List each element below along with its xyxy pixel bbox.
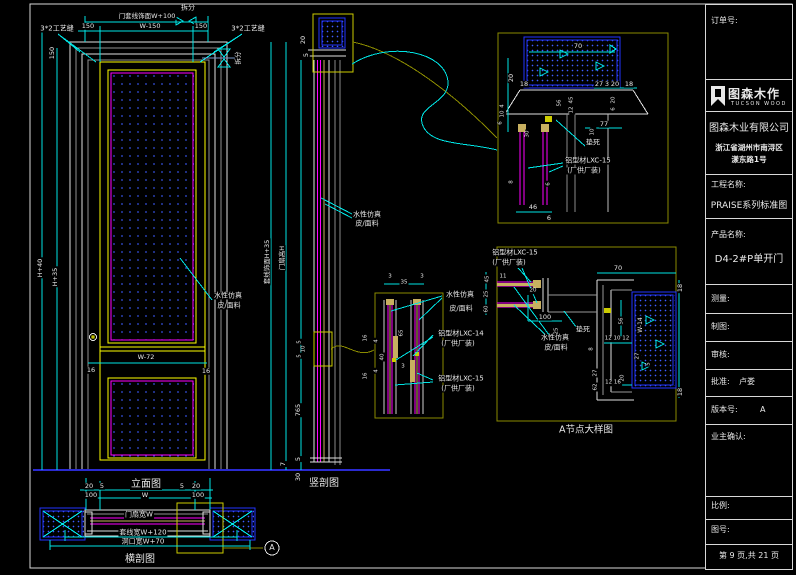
- annotation-f-leather1: 水性仿真: [540, 335, 570, 342]
- annotation-f-dim-18b: 18: [677, 387, 684, 397]
- annotation-e-note-dead: 垫死: [585, 140, 601, 147]
- annotation-vs-dim-30b: 30: [295, 472, 302, 482]
- annotation-vs-trim-h: 套线饰面H+35: [264, 239, 271, 286]
- mullion-leader-wave: [331, 346, 374, 353]
- annotation-e-dim-20: 20: [610, 81, 620, 88]
- annotation-e-dim-30: 30: [525, 130, 531, 139]
- annotation-hs-dim-20-l: 20: [84, 483, 94, 490]
- annotation-f-dim-1216: 12 16: [604, 380, 622, 386]
- annotation-e-dim-6d: 6: [546, 215, 552, 222]
- annotation-vs-lock-5b: 5: [297, 353, 303, 359]
- annotation-hs-dim-100-l: 100: [84, 492, 98, 499]
- annotation-label-seam-right: 3*2工艺缝: [230, 26, 265, 33]
- top-node-detail: [498, 33, 668, 223]
- annotation-hs-dim-5-r: 5: [179, 483, 185, 490]
- annotation-vs-lock-10: 10: [301, 345, 307, 354]
- annotation-e-dim-18l: 18: [519, 81, 529, 88]
- split-arrow-icon: [176, 17, 183, 25]
- title-block: 订单号: 图森木作 TUCSON WOOD 图森木业有限公司 浙江省湖州市南浔区…: [705, 4, 793, 570]
- annotation-f-dim-27b: 27: [593, 369, 599, 378]
- annotation-e-dim-10: 10: [500, 110, 506, 119]
- annotation-e-dim-6c: 6: [546, 181, 552, 187]
- annotation-g-alu15-2: (厂供厂装): [440, 386, 475, 393]
- annotation-e-dim-6b: 6: [611, 106, 617, 112]
- tucson-logo-icon: [710, 85, 726, 109]
- approve-label: 批准:: [711, 378, 730, 387]
- annotation-cap-vsection: 竖剖图: [308, 479, 340, 489]
- annotation-f-note-dead: 垫死: [575, 327, 591, 334]
- annotation-g-dim-3b: 3: [419, 274, 425, 280]
- annotation-g-dim-4b: 4: [374, 368, 380, 374]
- project-name-label: 工程名称:: [711, 181, 746, 190]
- annotation-f-alu15-2: (厂供厂装): [491, 260, 526, 267]
- annotation-elev-top-note: 门套线饰面W+100: [118, 13, 177, 20]
- annotation-elev-dim-h35: H+35: [52, 267, 59, 288]
- annotation-hs-dim-100-r: 100: [191, 492, 205, 499]
- annotation-f-alu15-1: 铝型材LXC-15: [491, 250, 539, 257]
- annotation-note-leather-door2: 皮/面料: [216, 303, 241, 310]
- annotation-e-dim-56: 56: [557, 99, 563, 108]
- annotation-vs-dim-5: 5: [303, 52, 310, 58]
- annotation-hs-hole-w: 洞口宽W+70: [121, 539, 166, 546]
- scale-label: 比例:: [711, 502, 730, 511]
- annotation-hs-leaf-w: 门扇宽W: [124, 512, 154, 519]
- annotation-note-leather-mid1: 水性仿真: [352, 212, 382, 219]
- annotation-vs-leaf-h: 门扇高H: [279, 245, 286, 271]
- annotation-g-alu15-1: 铝型材LXC-15: [437, 376, 485, 383]
- split-symbol-icon: [218, 49, 230, 57]
- annotation-e-dim-77: 77: [599, 121, 609, 128]
- product-name-label: 产品名称:: [711, 231, 746, 240]
- annotation-e-dim-6: 6: [498, 120, 504, 126]
- annotation-g-dim-4a: 4: [374, 338, 380, 344]
- annotation-f-leather2: 皮/面料: [543, 345, 568, 352]
- annotation-g-dim-16a: 16: [363, 334, 369, 343]
- node-a-detail: [497, 247, 679, 421]
- annotation-hs-dim-w: W: [141, 492, 149, 499]
- approve-value: 卢娄: [739, 378, 755, 387]
- annotation-g-dim-3a: 3: [387, 274, 393, 280]
- annotation-g-alu14-1: 铝型材LXC-14: [437, 331, 485, 338]
- annotation-f-dim-70: 70: [613, 265, 623, 272]
- version-value: A: [760, 406, 765, 415]
- annotation-vs-dim-765: 765: [295, 403, 302, 417]
- owner-confirm-label: 业主确认:: [711, 433, 746, 442]
- annotation-e-alu15-1: 铝型材LXC-15: [564, 158, 612, 165]
- annotation-elev-dim-150-vert: 150: [49, 46, 56, 60]
- annotation-f-dim-20: 20: [529, 288, 538, 294]
- annotation-g-dim-65: 65: [399, 329, 405, 338]
- annotation-elev-dim-150-right: 150: [194, 23, 208, 30]
- annotation-g-dim-35: 35: [400, 280, 409, 286]
- figure-number-label: 图号:: [711, 526, 730, 535]
- annotation-f-dim-121012: 12 10 12: [604, 336, 631, 342]
- annotation-hs-trim-w: 套线宽W+120: [118, 530, 167, 537]
- annotation-vs-dim-7b: 7: [280, 461, 287, 467]
- annotation-e-dim-8: 8: [509, 179, 515, 185]
- measure-label: 测量:: [711, 295, 730, 304]
- annotation-f-dim-8: 8: [589, 346, 595, 352]
- door-handle-icon: [90, 334, 97, 341]
- annotation-g-dim-3c: 3: [400, 364, 406, 370]
- annotation-f-dim-62: 62: [593, 383, 599, 392]
- drawing-sheet: 门套线饰面W+100150W-150150拆分3*2工艺缝3*2工艺缝150H+…: [0, 0, 796, 575]
- logo-name: 图森木作: [728, 88, 780, 101]
- annotation-g-leather1: 水性仿真: [445, 292, 475, 299]
- project-name-value: PRAISE系列标准图: [706, 202, 792, 212]
- annotation-e-dim-12: 12: [569, 106, 575, 115]
- annotation-e-dim-20v: 20: [508, 73, 515, 83]
- annotation-cap-adetail: A节点大样图: [558, 425, 614, 435]
- annotation-e-alu15-2: (厂供厂装): [566, 168, 601, 175]
- annotation-f-dim-56: 56: [619, 317, 625, 326]
- annotation-elev-dim-16-left: 16: [86, 367, 96, 374]
- order-number-label: 订单号:: [711, 17, 738, 26]
- annotation-g-dim-16b: 16: [363, 372, 369, 381]
- annotation-note-leather-door1: 水性仿真: [213, 293, 243, 300]
- annotation-cap-hsection: 横剖图: [124, 555, 156, 565]
- annotation-f-dim-5: 5: [646, 361, 652, 367]
- annotation-elev-dim-150-left: 150: [81, 23, 95, 30]
- annotation-label-seam-left: 3*2工艺缝: [39, 26, 74, 33]
- split-symbol-icon: [218, 59, 230, 67]
- annotation-vs-dim-5b: 5: [295, 456, 302, 462]
- product-name-value: D4-2#P单开门: [706, 254, 792, 265]
- company-address-line2: 漾东路1号: [706, 156, 792, 164]
- annotation-e-dim-10b: 10: [590, 128, 596, 137]
- annotation-label-chaifen: 拆分: [180, 5, 196, 12]
- annotation-f-dim-27: 27: [635, 352, 641, 361]
- annotation-elev-dim-h40: H+40: [37, 258, 44, 279]
- annotation-marker-a: A: [268, 544, 275, 552]
- annotation-e-dim-45: 45: [569, 96, 575, 105]
- annotation-elev-dim-16-right: 16: [201, 368, 211, 375]
- version-label: 版本号:: [711, 406, 738, 415]
- annotation-g-alu14-2: (厂供厂装): [440, 341, 475, 348]
- annotation-hs-dim-20-r: 20: [191, 483, 201, 490]
- annotation-f-dim-w14: W-14: [638, 316, 644, 334]
- detail-leader-wave: [352, 51, 497, 150]
- annotation-e-dim-4: 4: [500, 103, 506, 109]
- annotation-e-dim-20b: 20: [611, 96, 617, 105]
- elevation-dimensions: [42, 16, 242, 470]
- annotation-f-dim-18t: 18: [677, 283, 684, 293]
- annotation-cap-elevation: 立面图: [130, 480, 162, 490]
- company-name: 图森木业有限公司: [706, 123, 792, 134]
- audit-label: 审核:: [711, 351, 730, 360]
- draft-label: 制图:: [711, 323, 730, 332]
- company-address-line1: 浙江省湖州市南浔区: [706, 144, 792, 152]
- page-info: 第 9 页,共 21 页: [706, 552, 792, 561]
- annotation-elev-dim-w72: W-72: [137, 354, 156, 361]
- annotation-split-sym-text: 拆分: [235, 51, 242, 66]
- annotation-g-leather2: 皮/面料: [448, 306, 473, 313]
- elevation-view: [33, 42, 390, 470]
- annotation-vs-dim-20: 20: [300, 35, 307, 45]
- annotation-elev-dim-mid: W-150: [139, 23, 162, 30]
- annotation-note-leather-mid2: 皮/面料: [354, 221, 379, 228]
- annotation-g-dim-60: 60: [484, 305, 490, 314]
- annotation-g-dim-25: 25: [484, 290, 490, 299]
- annotation-hs-dim-5-l: 5: [99, 483, 105, 490]
- annotation-g-dim-40: 40: [380, 353, 386, 362]
- annotation-g-dim-45: 45: [485, 275, 491, 284]
- annotation-e-dim-70: 70: [573, 43, 583, 50]
- annotation-e-dim-46: 46: [528, 204, 538, 211]
- annotation-f-dim-100: 100: [538, 314, 552, 321]
- logo-subtitle: TUCSON WOOD: [731, 102, 787, 108]
- annotation-e-dim-27: 27: [594, 81, 604, 88]
- annotation-e-dim-18r: 18: [624, 81, 634, 88]
- annotation-f-dim-11: 11: [499, 274, 508, 280]
